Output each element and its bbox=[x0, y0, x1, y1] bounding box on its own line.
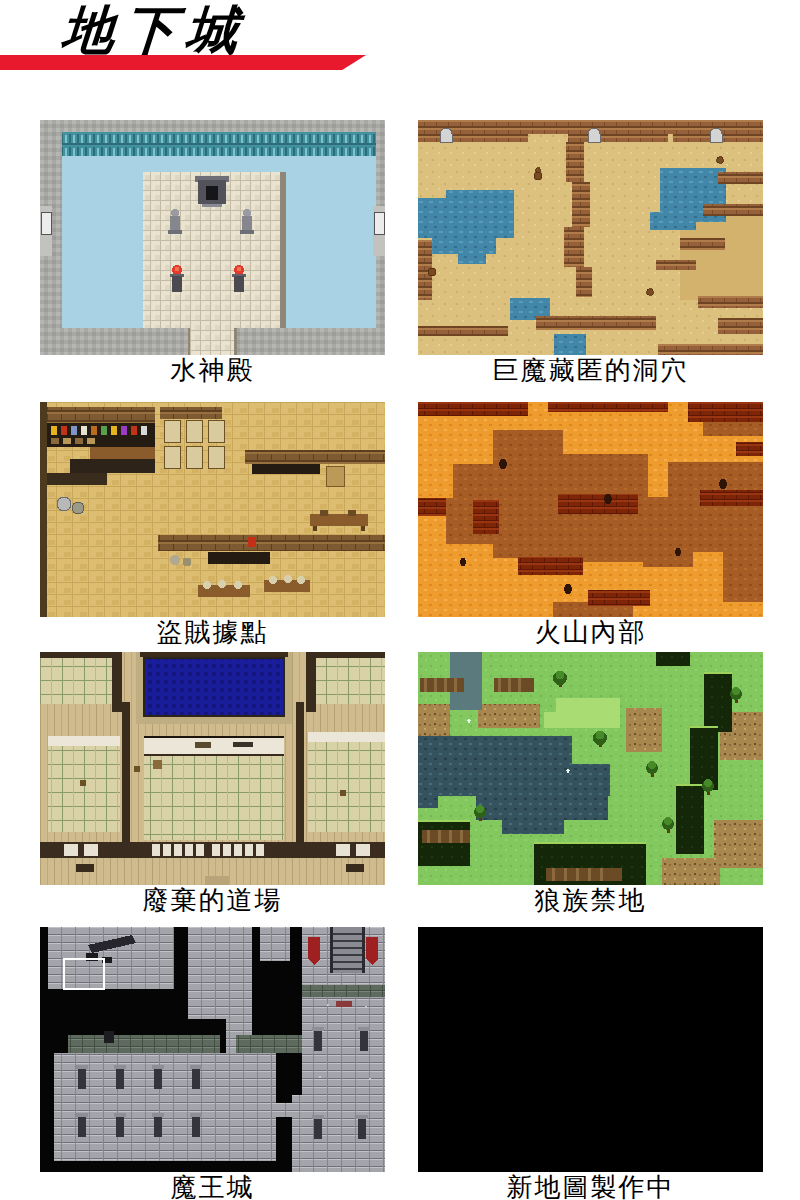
red-banner-icon bbox=[308, 937, 320, 965]
wolf-land-map-image bbox=[418, 652, 763, 885]
map-card-wolf-land: 狼族禁地 bbox=[418, 652, 763, 914]
map-caption: 狼族禁地 bbox=[418, 887, 763, 914]
right-mid-room bbox=[308, 732, 385, 832]
map-card-water-temple: 水神殿 bbox=[40, 120, 385, 384]
map-caption: 巨魔藏匿的洞穴 bbox=[418, 357, 763, 384]
map-caption: 魔王城 bbox=[40, 1174, 385, 1200]
wall bbox=[47, 407, 155, 423]
cave-door-icon bbox=[588, 128, 600, 142]
torch-icon bbox=[232, 265, 246, 292]
low-table-icon bbox=[346, 864, 364, 872]
shelf-with-goods bbox=[47, 423, 155, 447]
thief-hideout-map-image bbox=[40, 402, 385, 617]
small-pool bbox=[554, 334, 586, 355]
map-caption: 水神殿 bbox=[40, 357, 385, 384]
map-card-thief-hideout: 盜賊據點 bbox=[40, 402, 385, 646]
page-title: 地下城 bbox=[60, 0, 251, 66]
top-left-room bbox=[40, 652, 122, 712]
temple-walkway bbox=[190, 328, 234, 355]
top-right-room bbox=[306, 652, 385, 712]
bucket-icon bbox=[153, 760, 162, 769]
torch-icon bbox=[170, 265, 184, 292]
moss-wall bbox=[68, 1035, 220, 1053]
map-card-new-map: 新地圖製作中 bbox=[418, 927, 763, 1200]
bottom-wall-doors bbox=[40, 842, 385, 858]
entry-step bbox=[205, 876, 229, 885]
table-with-bowls bbox=[264, 575, 310, 592]
troll-cave-map-image bbox=[418, 120, 763, 355]
black-placeholder bbox=[418, 927, 763, 1172]
map-caption: 廢棄的道場 bbox=[40, 887, 385, 914]
left-door bbox=[41, 212, 51, 234]
pot-icon bbox=[183, 558, 192, 567]
shelf bbox=[252, 464, 320, 474]
pot-icon bbox=[170, 555, 180, 565]
barrel-icon bbox=[57, 497, 71, 511]
water-temple-map-image bbox=[40, 120, 385, 355]
dojo-map-image bbox=[40, 652, 385, 885]
shelf bbox=[208, 552, 270, 564]
map-card-troll-cave: 巨魔藏匿的洞穴 bbox=[418, 120, 763, 384]
counter bbox=[47, 473, 107, 485]
volcano-map-image bbox=[418, 402, 763, 617]
cave-door-icon bbox=[440, 128, 452, 142]
map-card-demon-castle: 魔王城 bbox=[40, 927, 385, 1200]
counter bbox=[90, 447, 155, 459]
red-chest-icon bbox=[248, 537, 256, 547]
stairs-icon bbox=[330, 927, 365, 973]
crate-icon bbox=[326, 466, 344, 486]
map-card-dojo: 廢棄的道場 bbox=[40, 652, 385, 914]
right-pool bbox=[650, 168, 726, 230]
right-door bbox=[374, 212, 384, 234]
wall-pillar bbox=[122, 702, 130, 844]
moss-wall bbox=[302, 985, 385, 997]
new-map-placeholder-image bbox=[418, 927, 763, 1172]
map-caption: 火山內部 bbox=[418, 619, 763, 646]
map-caption: 新地圖製作中 bbox=[418, 1174, 763, 1200]
map-card-volcano: 火山內部 bbox=[418, 402, 763, 646]
counter bbox=[70, 459, 155, 473]
cave-door-icon bbox=[710, 128, 722, 142]
demon-castle-map-image bbox=[40, 927, 385, 1172]
shrine-icon bbox=[195, 176, 229, 207]
dark-statue-icon bbox=[104, 1031, 114, 1043]
red-banner-icon bbox=[366, 937, 378, 965]
barrel-icon bbox=[72, 502, 84, 514]
wall-pillar bbox=[296, 702, 304, 844]
page: 地下城 bbox=[0, 0, 800, 1200]
low-table-icon bbox=[76, 864, 94, 872]
indoor-pool bbox=[136, 652, 292, 724]
shoji-band bbox=[144, 736, 284, 756]
map-caption: 盜賊據點 bbox=[40, 619, 385, 646]
main-hall-tatami bbox=[144, 756, 284, 840]
moss-wall bbox=[236, 1035, 302, 1053]
